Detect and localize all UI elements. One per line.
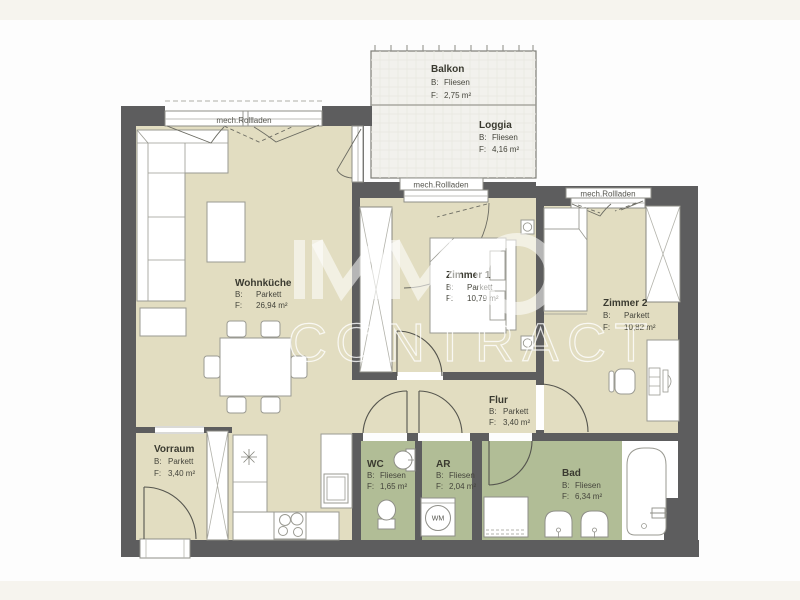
svg-text:F:: F: bbox=[235, 301, 242, 310]
svg-text:Wohnküche: Wohnküche bbox=[235, 278, 292, 289]
svg-text:Parkett: Parkett bbox=[256, 290, 282, 299]
svg-text:2,75 m²: 2,75 m² bbox=[444, 91, 471, 100]
svg-text:WM: WM bbox=[432, 516, 445, 523]
svg-text:2,04 m²: 2,04 m² bbox=[449, 482, 476, 491]
svg-text:mech.Rollladen: mech.Rollladen bbox=[413, 181, 468, 190]
svg-text:3,40 m²: 3,40 m² bbox=[503, 418, 530, 427]
svg-text:B:: B: bbox=[431, 78, 439, 87]
svg-text:Loggia: Loggia bbox=[479, 120, 512, 131]
svg-text:B:: B: bbox=[367, 471, 375, 480]
svg-text:mech.Rollladen: mech.Rollladen bbox=[580, 190, 635, 199]
svg-text:26,94 m²: 26,94 m² bbox=[256, 301, 288, 310]
svg-text:Fliesen: Fliesen bbox=[380, 471, 406, 480]
svg-text:Balkon: Balkon bbox=[431, 64, 464, 75]
svg-text:F:: F: bbox=[367, 482, 374, 491]
svg-text:1,65 m²: 1,65 m² bbox=[380, 482, 407, 491]
svg-text:WC: WC bbox=[367, 459, 384, 470]
svg-text:Bad: Bad bbox=[562, 468, 581, 479]
svg-text:F:: F: bbox=[479, 145, 486, 154]
svg-text:6,34 m²: 6,34 m² bbox=[575, 492, 602, 501]
svg-text:B:: B: bbox=[479, 133, 487, 142]
svg-text:Fliesen: Fliesen bbox=[449, 471, 475, 480]
svg-text:Fliesen: Fliesen bbox=[444, 78, 470, 87]
svg-text:F:: F: bbox=[436, 482, 443, 491]
svg-text:Zimmer 2: Zimmer 2 bbox=[603, 298, 648, 309]
svg-text:CONTRACT: CONTRACT bbox=[288, 313, 656, 373]
svg-text:Parkett: Parkett bbox=[503, 407, 529, 416]
svg-text:Flur: Flur bbox=[489, 395, 508, 406]
svg-text:Vorraum: Vorraum bbox=[154, 444, 194, 455]
svg-text:B:: B: bbox=[562, 481, 570, 490]
svg-text:AR: AR bbox=[436, 459, 451, 470]
svg-text:Parkett: Parkett bbox=[168, 457, 194, 466]
svg-text:B:: B: bbox=[489, 407, 497, 416]
svg-text:F:: F: bbox=[489, 418, 496, 427]
svg-text:mech.Rollladen: mech.Rollladen bbox=[216, 116, 271, 125]
svg-text:4,16 m²: 4,16 m² bbox=[492, 145, 519, 154]
svg-text:F:: F: bbox=[431, 91, 438, 100]
svg-text:Fliesen: Fliesen bbox=[575, 481, 601, 490]
svg-text:Fliesen: Fliesen bbox=[492, 133, 518, 142]
svg-text:3,40 m²: 3,40 m² bbox=[168, 469, 195, 478]
svg-text:B:: B: bbox=[235, 290, 243, 299]
svg-text:B:: B: bbox=[154, 457, 162, 466]
svg-text:B:: B: bbox=[436, 471, 444, 480]
svg-text:F:: F: bbox=[154, 469, 161, 478]
svg-text:F:: F: bbox=[562, 492, 569, 501]
